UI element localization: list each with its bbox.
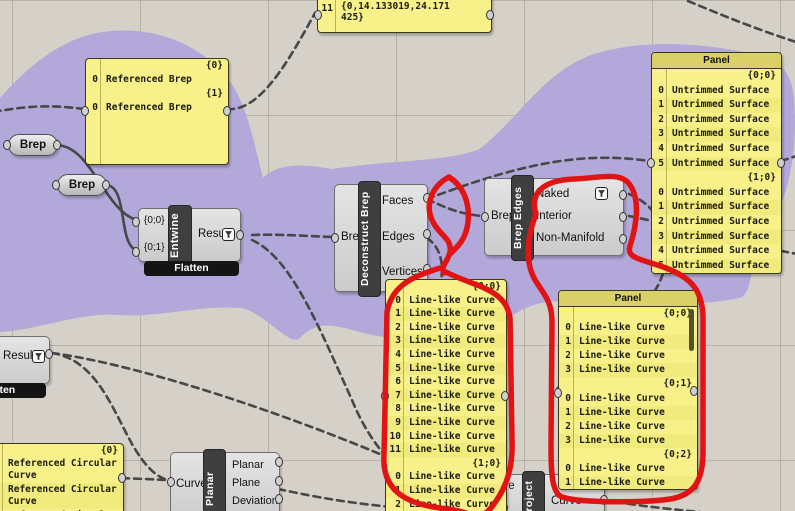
panel-row: 11Line-like Curve	[386, 443, 506, 457]
panel-row: 0Untrimmed Surface	[652, 84, 781, 99]
panel-row: 0Untrimmed Surface	[652, 186, 781, 201]
brep-param-2-label: Brep	[69, 179, 95, 191]
panel-row: 6Line-like Curve	[386, 375, 506, 389]
path-text: {0}	[3, 444, 123, 457]
panel-row: 0Referenced Brep	[86, 73, 228, 87]
surfaces-panel-output-nub[interactable]	[777, 158, 785, 168]
row-index: 0	[86, 73, 101, 87]
brep-param-2[interactable]: Brep	[57, 174, 107, 196]
entwine-flatten-tag: Flatten	[144, 261, 239, 276]
brep-param-1-label: Brep	[20, 139, 46, 151]
project-output-curve[interactable]: Curve	[551, 495, 582, 507]
panel-row: 4Line-like Curve	[386, 348, 506, 362]
row-text: Referenced Brep	[101, 101, 228, 115]
deconstruct-label: Deconstruct Brep	[358, 181, 381, 297]
panel-row: 1Line-like Curve	[559, 406, 697, 420]
panel-row: 0Line-like Curve	[386, 470, 506, 484]
panel-row: 1Line-like Curve	[386, 307, 506, 321]
entwine2-output-result[interactable]: Result	[3, 350, 36, 362]
panel-row: 3Line-like Curve	[559, 363, 697, 377]
panel-row: 4Untrimmed Surface	[652, 142, 781, 157]
entwine2-component[interactable]: Result	[0, 336, 50, 384]
panel-row: 2Untrimmed Surface	[652, 215, 781, 230]
brep-edges-label: Brep Edges	[511, 175, 534, 261]
planar-planar-nub[interactable]	[275, 457, 283, 467]
brep-edges-output-naked[interactable]: Naked	[536, 188, 569, 200]
panel-row: 2Line-like Curve	[559, 420, 697, 434]
panel-row: 9Line-like Curve	[386, 416, 506, 430]
entwine-component[interactable]: {0;0} {0;1} Entwine Result	[138, 208, 241, 262]
brep-param-1-output-nub[interactable]	[53, 140, 61, 150]
path-header-row: {1}	[86, 87, 228, 101]
point-value-panel[interactable]: 11 {0,14.133019,24.171425}	[317, 0, 492, 33]
value-panel-input-nub[interactable]	[314, 10, 322, 20]
panel-row: 1Line-like Curve	[386, 484, 506, 498]
panel-row: 3Untrimmed Surface	[652, 230, 781, 245]
path-text: {0;0}	[667, 69, 781, 84]
panel-row: 1Untrimmed Surface	[652, 200, 781, 215]
panel-row: 2Line-like Curve	[386, 498, 506, 511]
planar-plane-nub[interactable]	[275, 476, 283, 486]
project-output-nub[interactable]	[600, 495, 608, 505]
refs-panel-output-nub[interactable]	[223, 106, 231, 116]
panel-title: Panel	[559, 291, 697, 307]
path-header-row: {0}	[86, 59, 228, 73]
project-label: Project	[522, 471, 545, 511]
panel-row: 3Untrimmed Surface	[652, 127, 781, 142]
flatten-icon	[595, 187, 608, 200]
entwine-input-1-nub[interactable]	[132, 247, 140, 257]
referenced-brep-panel[interactable]: {0} 0Referenced Brep {1} 0Referenced Bre…	[85, 58, 229, 165]
panel-row: 0Line-like Curve	[559, 462, 697, 476]
panel-row: 1Referenced Circular Curve	[0, 483, 123, 509]
naked-panel-output-nub[interactable]	[690, 386, 698, 396]
path-text: {0;0}	[404, 280, 506, 294]
panel-row: 5Untrimmed Surface	[652, 259, 781, 274]
brep-edges-input-nub[interactable]	[481, 212, 489, 222]
panel-row: 3Line-like Curve	[559, 434, 697, 448]
panel-row: 2Line-like Curve	[559, 349, 697, 363]
grasshopper-canvas[interactable]: Brep Brep {0;0} {0;1} Entwine Result Fla…	[0, 0, 795, 511]
panel-row: 1Line-like Curve	[559, 476, 697, 490]
brep-edges-nonmanifold-nub[interactable]	[619, 234, 627, 244]
panel-row: 1Untrimmed Surface	[652, 98, 781, 113]
brep-param-2-output-nub[interactable]	[102, 180, 110, 190]
panel-row: 11 {0,14.133019,24.171425}	[318, 0, 491, 32]
panel-row: 0Line-like Curve	[559, 392, 697, 406]
entwine-input-0[interactable]: {0;0}	[144, 215, 165, 226]
surfaces-panel-input-nub[interactable]	[647, 158, 655, 168]
planar-component[interactable]: Curve Planar Planar Plane Deviation	[170, 452, 280, 511]
naked-panel-input-nub[interactable]	[554, 388, 562, 398]
value-panel-output-nub[interactable]	[486, 10, 494, 20]
panel-row: 10Line-like Curve	[386, 430, 506, 444]
deconstruct-input-nub[interactable]	[331, 233, 339, 243]
panel-row: 0Line-like Curve	[559, 321, 697, 335]
deconstruct-brep-component[interactable]: Brep Deconstruct Brep Faces Edges Vertic…	[334, 184, 428, 292]
deconstruct-faces-nub[interactable]	[423, 193, 431, 203]
row-text: {0,14.133019,24.171425}	[336, 0, 453, 32]
brep-param-2-input-nub[interactable]	[52, 180, 60, 190]
planar-input-nub[interactable]	[167, 477, 175, 487]
deconstruct-output-vertices[interactable]: Vertices	[382, 266, 423, 278]
refs-panel-input-nub[interactable]	[81, 106, 89, 116]
panel-row: 1Line-like Curve	[559, 335, 697, 349]
path-text: {0}	[101, 59, 228, 73]
entwine-output-nub[interactable]	[236, 230, 244, 240]
panel-row: 0Line-like Curve	[386, 294, 506, 308]
panel-title: Panel	[652, 53, 781, 69]
path-text: {0;0}	[574, 307, 697, 321]
deconstruct-output-edges[interactable]: Edges	[382, 231, 415, 243]
brep-edges-output-nonmanifold[interactable]: Non-Manifold	[536, 232, 604, 244]
entwine-label: Entwine	[168, 205, 192, 267]
brep-param-1[interactable]: Brep	[8, 134, 58, 156]
path-text: {1;0}	[404, 457, 506, 471]
panel-row: 7Line-like Curve	[386, 389, 506, 403]
surfaces-panel[interactable]: Panel {0;0} 0Untrimmed Surface 1Untrimme…	[651, 52, 782, 274]
brep-edges-naked-nub[interactable]	[619, 190, 627, 200]
edges-panel-output-nub[interactable]	[501, 391, 509, 401]
panel-row: 2Untrimmed Surface	[652, 113, 781, 128]
entwine2-output-nub[interactable]	[45, 349, 53, 359]
planar-output-planar[interactable]: Planar	[232, 459, 264, 471]
panel-row: 2Line-like Curve	[386, 321, 506, 335]
path-text: {1}	[101, 87, 228, 101]
flatten-icon	[32, 350, 45, 363]
edges-panel-input-nub[interactable]	[381, 391, 389, 401]
naked-edges-panel[interactable]: Panel {0;0} 0Line-like Curve 1Line-like …	[558, 290, 698, 490]
planar-deviation-nub[interactable]	[275, 494, 283, 504]
deconstruct-output-faces[interactable]: Faces	[382, 195, 413, 207]
panel-row: 0Referenced Circular Curve	[0, 457, 123, 483]
path-text: {0;2}	[574, 448, 697, 462]
circular-curves-panel[interactable]: {0} 0Referenced Circular Curve 1Referenc…	[0, 443, 124, 511]
edges-panel[interactable]: {0;0} 0Line-like Curve 1Line-like Curve …	[385, 279, 507, 511]
brep-edges-output-interior[interactable]: Interior	[536, 210, 572, 222]
panel-row: 0Referenced Brep	[86, 101, 228, 115]
panel-row: 4Untrimmed Surface	[652, 244, 781, 259]
flatten-icon	[222, 228, 235, 241]
planar-output-plane[interactable]: Plane	[232, 477, 260, 489]
entwine-input-1[interactable]: {0;1}	[144, 242, 165, 253]
panel-row: 5Untrimmed Surface	[652, 157, 781, 172]
circular-panel-output-nub[interactable]	[118, 473, 126, 483]
planar-label: Planar	[203, 449, 226, 511]
panel-row: 3Line-like Curve	[386, 334, 506, 348]
panel-scrollbar[interactable]	[689, 309, 694, 351]
brep-edges-component[interactable]: Brep Brep Edges Naked Interior Non-Manif…	[484, 178, 624, 256]
deconstruct-vertices-nub[interactable]	[423, 264, 431, 274]
panel-row: 8Line-like Curve	[386, 402, 506, 416]
path-text: {0;1}	[574, 377, 697, 391]
path-text: {1;0}	[667, 171, 781, 186]
planar-output-deviation[interactable]: Deviation	[232, 495, 278, 507]
brep-edges-interior-nub[interactable]	[619, 212, 627, 222]
row-text: Referenced Brep	[101, 73, 228, 87]
entwine2-flatten-tag: Flatten	[0, 383, 46, 398]
brep-param-1-input-nub[interactable]	[3, 140, 11, 150]
deconstruct-edges-nub[interactable]	[423, 229, 431, 239]
entwine-input-0-nub[interactable]	[132, 217, 140, 227]
panel-row: 5Line-like Curve	[386, 362, 506, 376]
